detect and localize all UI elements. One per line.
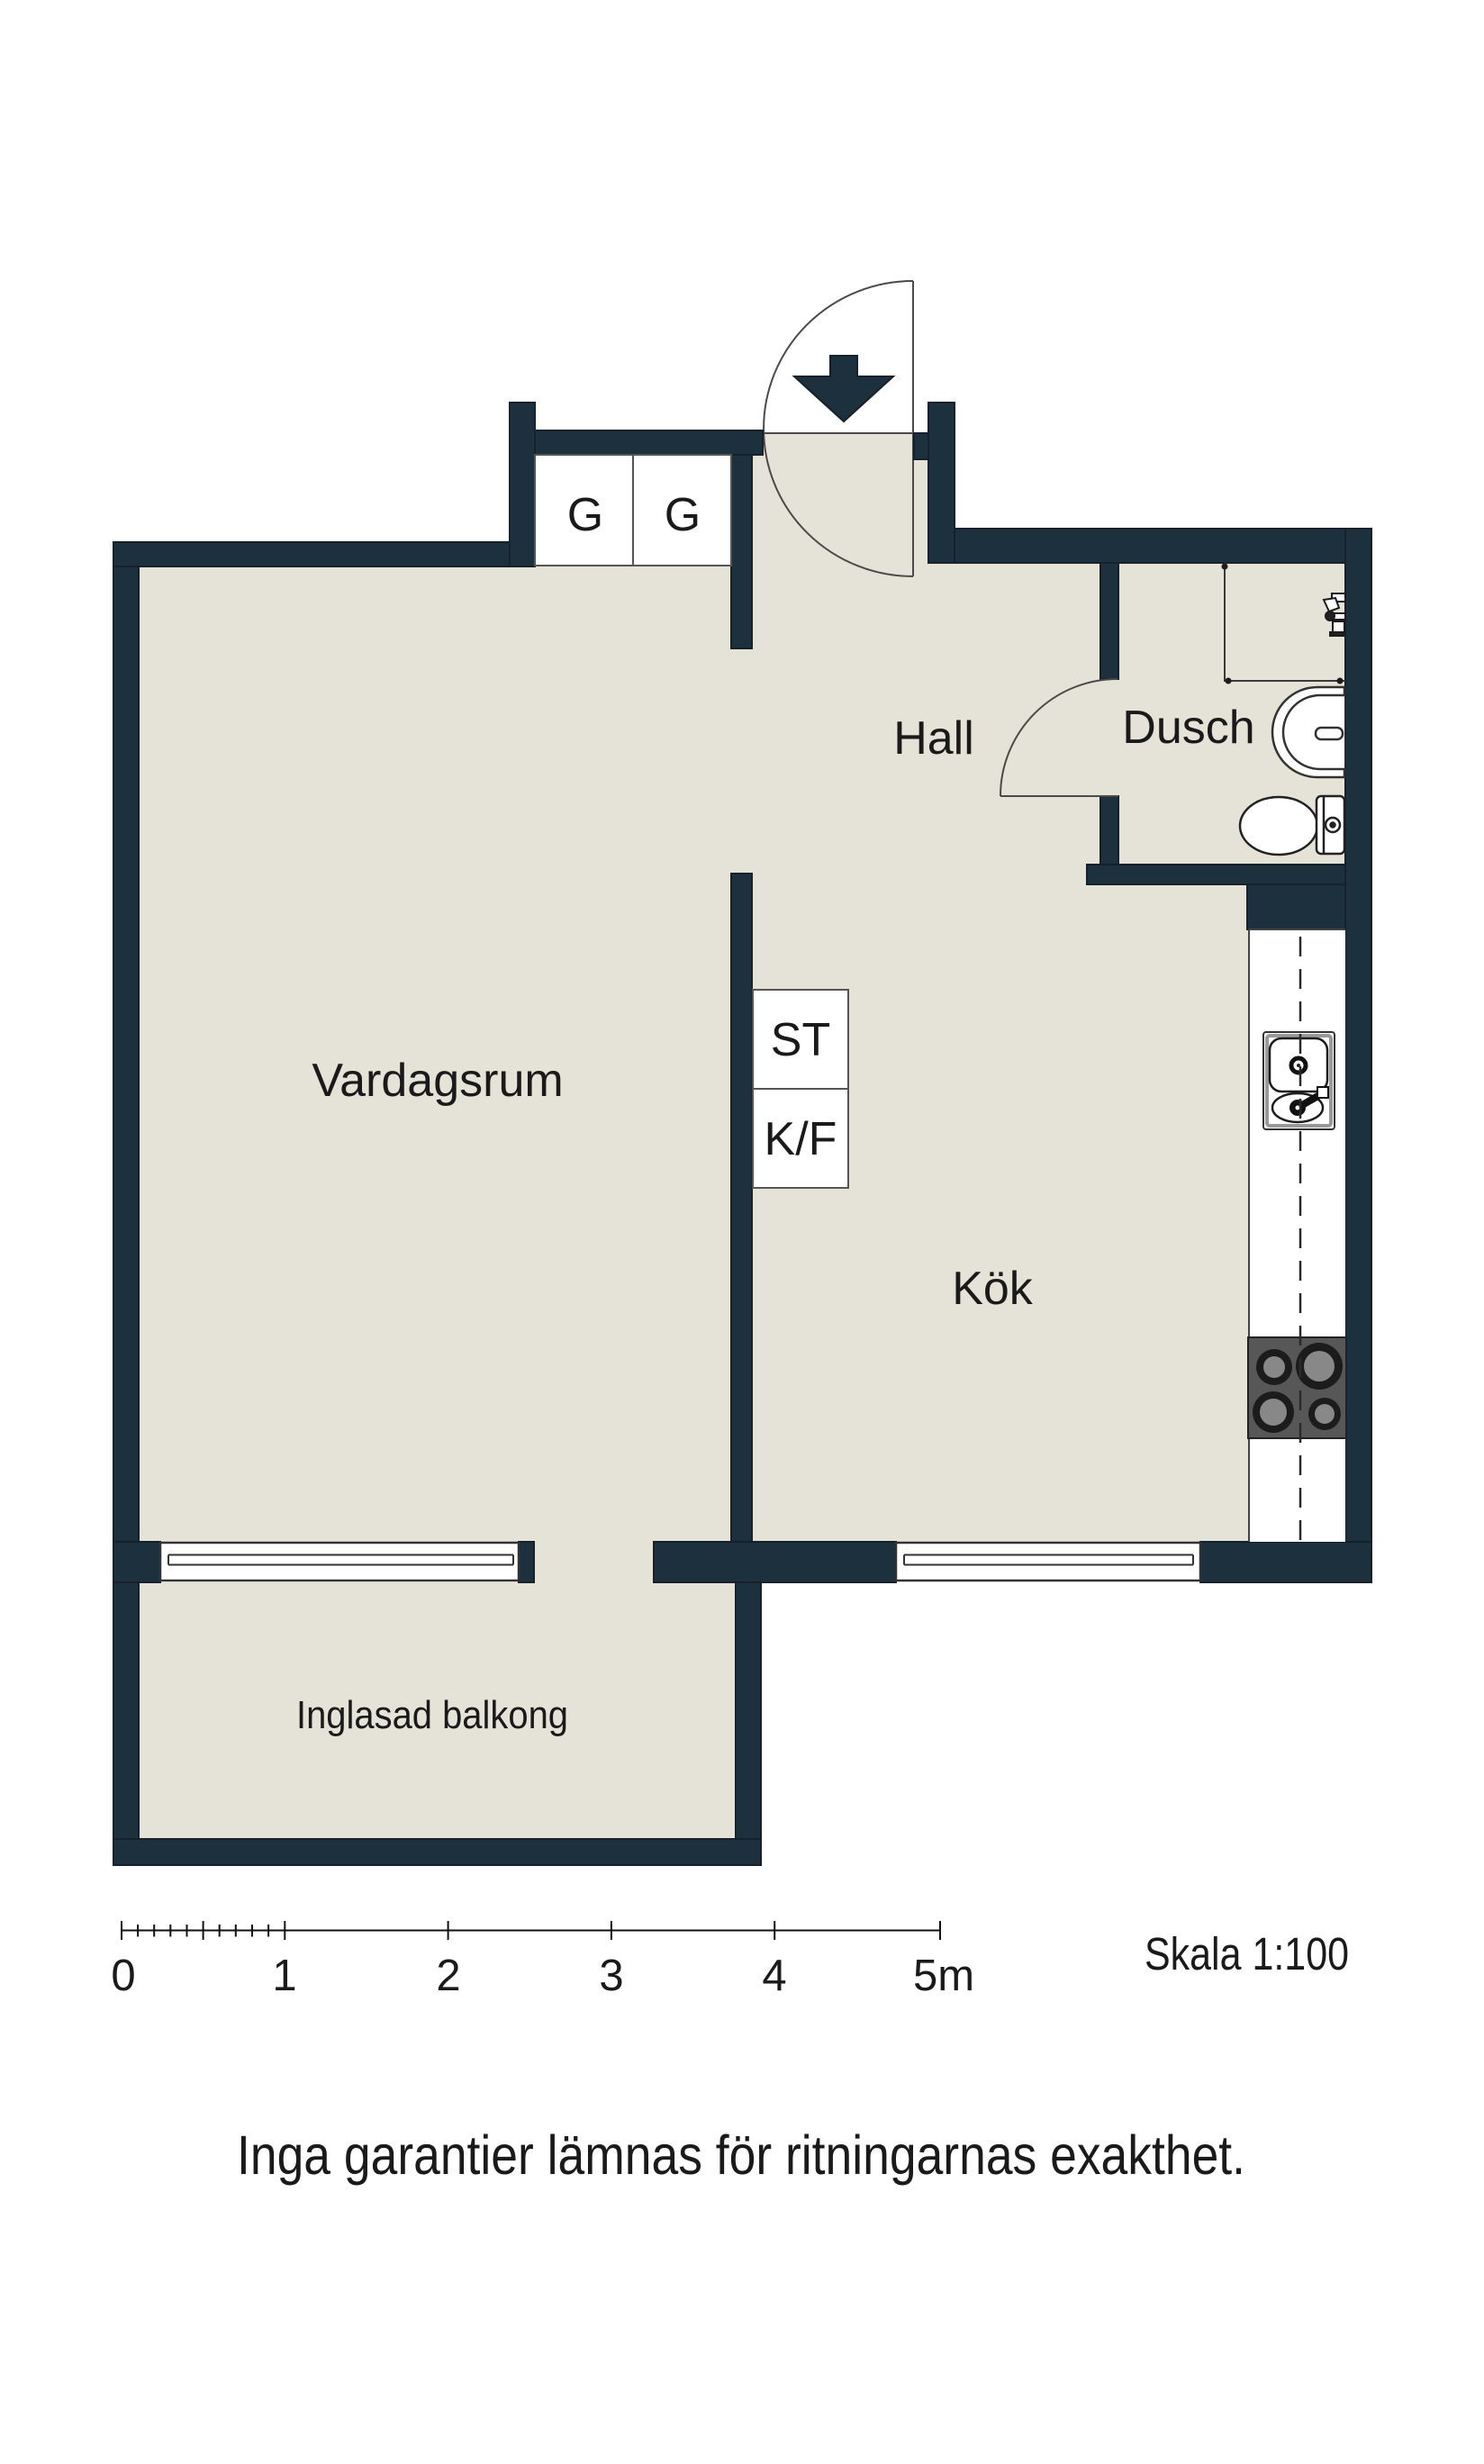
svg-text:Vardagsrum: Vardagsrum — [312, 1055, 563, 1107]
svg-text:Skala 1:100: Skala 1:100 — [1145, 1928, 1349, 1979]
svg-text:Inglasad balkong: Inglasad balkong — [296, 1693, 568, 1737]
svg-text:2: 2 — [436, 1952, 460, 2000]
svg-text:Kök: Kök — [952, 1263, 1034, 1315]
svg-text:0: 0 — [111, 1952, 135, 2000]
svg-text:K/F: K/F — [765, 1113, 837, 1165]
svg-text:1: 1 — [272, 1952, 296, 2000]
svg-text:3: 3 — [599, 1952, 623, 2000]
svg-text:Inga garantier lämnas för ritn: Inga garantier lämnas för ritningarnas e… — [237, 2124, 1245, 2186]
svg-text:ST: ST — [771, 1014, 830, 1066]
svg-text:5m: 5m — [913, 1952, 974, 2000]
svg-text:G: G — [665, 489, 701, 541]
svg-text:G: G — [567, 489, 603, 541]
svg-text:Hall: Hall — [893, 712, 974, 765]
svg-text:4: 4 — [762, 1952, 786, 2000]
svg-text:Dusch: Dusch — [1122, 702, 1254, 754]
